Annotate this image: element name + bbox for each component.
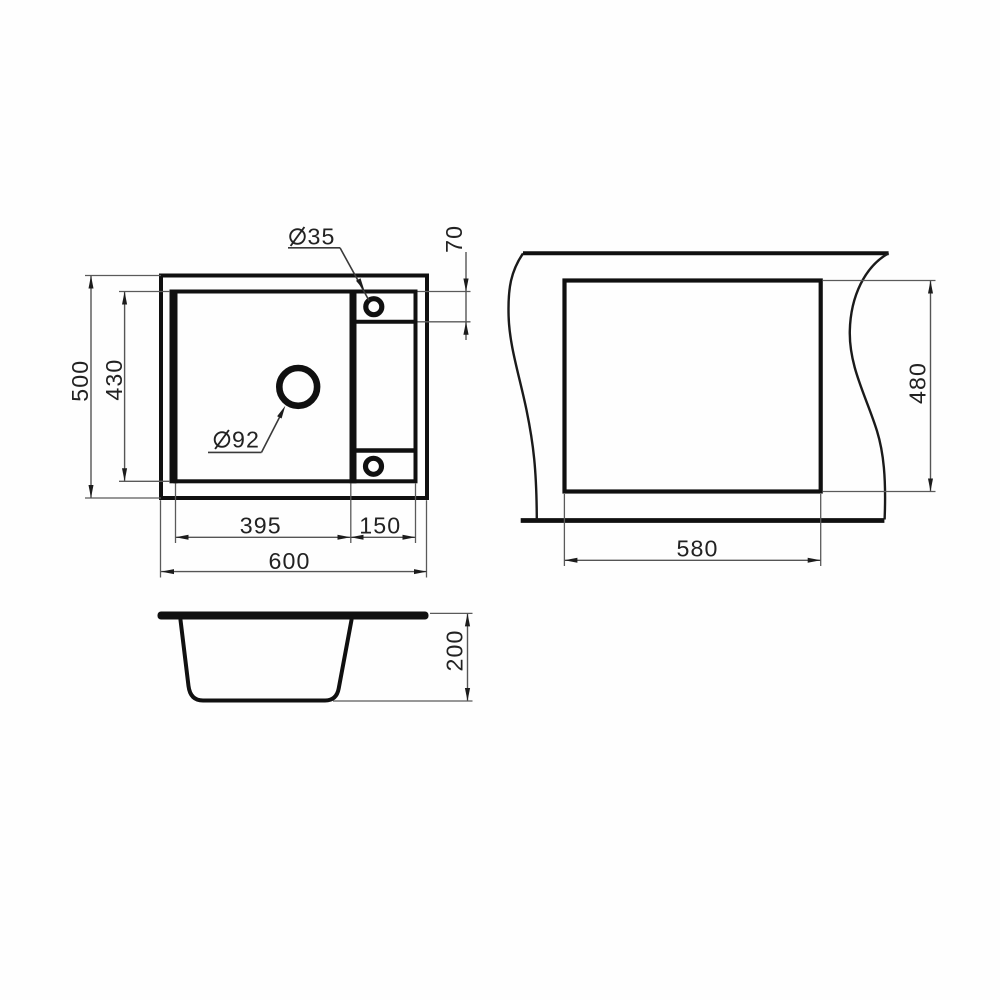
svg-text:480: 480 [905, 362, 931, 404]
svg-text:150: 150 [359, 513, 401, 539]
svg-text:200: 200 [442, 630, 468, 672]
svg-text:580: 580 [677, 536, 719, 562]
svg-text:395: 395 [240, 513, 282, 539]
svg-text:35: 35 [308, 224, 336, 250]
svg-text:430: 430 [101, 359, 127, 401]
svg-text:70: 70 [441, 225, 467, 253]
svg-text:600: 600 [269, 548, 311, 574]
svg-text:92: 92 [232, 427, 260, 453]
svg-text:500: 500 [67, 360, 93, 402]
